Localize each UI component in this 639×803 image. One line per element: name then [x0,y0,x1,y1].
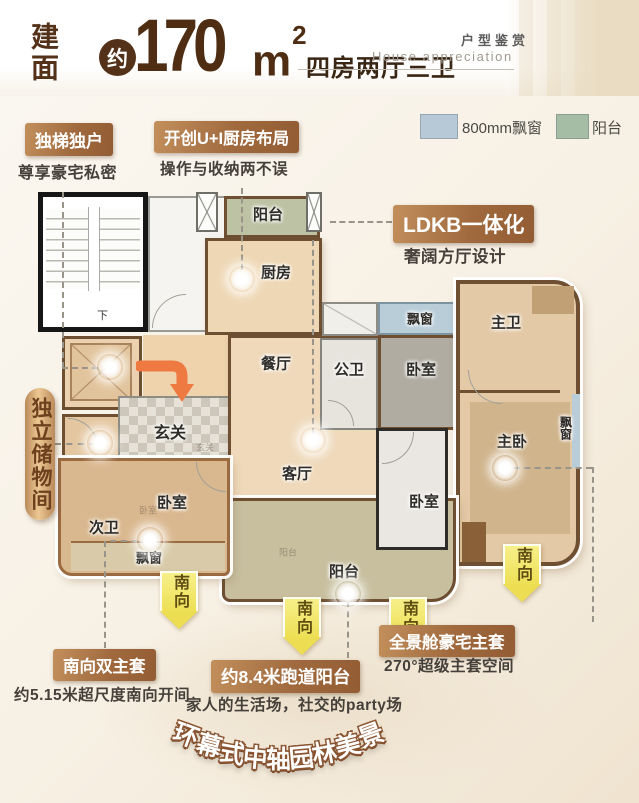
balcony-top-label: 阳台 [253,204,283,225]
connector-suite-v [104,541,106,648]
storage-ribbon-text: 独立储物间 [25,397,55,512]
unit-exponent: 2 [292,20,306,50]
south-arrow-2: 南向 [283,597,321,655]
glow-dot-balcony [335,581,361,607]
glow-dot-master [492,455,518,481]
arc-slogan: 环幕式中轴园林美景 [175,716,405,796]
bay-window-mid-label: 飘窗 [407,309,433,328]
glow-dot-elevator [97,354,123,380]
callout-south-suite-subtitle: 约5.15米超尺度南向开间 [14,683,190,705]
bay-window-right-label: 飘窗 [558,416,575,440]
kitchen-label: 厨房 [261,262,291,283]
unit-base: m [252,37,291,86]
callout-south-suite-title: 南向双主套 [53,649,156,681]
wardrobe [322,302,378,336]
balcony-bottom-label: 阳台 [329,561,359,582]
south-arrow-4-label: 南向 [505,547,539,583]
connector-master-h [514,467,592,469]
foyer-small-label: 玄关 [196,441,214,454]
master-bath-label: 主卫 [491,312,521,333]
header-underline [298,69,514,70]
bedroom-north-label: 卧室 [406,359,436,380]
legend-balcony-label: 阳台 [592,117,622,138]
glow-dot-storage [87,430,113,456]
area-value: 170 [134,0,223,92]
callout-private-elevator-subtitle: 尊享豪宅私密 [18,159,117,183]
callout-panorama-suite-subtitle: 270°超级主套空间 [384,654,514,676]
living-label: 客厅 [282,463,312,484]
stairs-down-label: 下 [97,307,108,323]
entry-route-arrow [136,354,198,404]
callout-panorama-suite-title: 全景舱豪宅主套 [379,625,515,657]
master-closet [532,286,574,314]
kitchen [205,238,322,335]
staircase: 下 [38,192,148,332]
bedroom-center-label: 卧室 [409,491,439,512]
header: 建面 约 170 m2 四房两厅三卫 户型鉴赏 House appreciati… [0,0,639,96]
callout-kitchen-title: 开创U+I厨房布局 [154,121,299,153]
connector-elevator-h [62,367,98,369]
second-bath-label: 次卫 [89,517,119,538]
connector-ldkb-h [330,221,392,223]
bedroom-left-label: 卧室 [157,492,187,513]
legend-balcony-swatch [556,114,589,139]
glow-dot-kitchen [229,266,255,292]
window-left-of-balcony [196,192,218,232]
poster: 建面 约 170 m2 四房两厅三卫 户型鉴赏 House appreciati… [0,0,639,803]
glow-dot-bedroom-left [137,527,163,553]
approx-seal: 约 [99,39,136,76]
connector-balcony-v [347,601,349,658]
storage-ribbon: 独立储物间 [25,388,55,520]
south-arrow-1: 南向 [160,571,198,629]
south-arrow-2-label: 南向 [285,600,319,636]
south-arrow-1-tip [160,611,198,629]
callout-runway-balcony-title: 约8.4米跑道阳台 [211,660,360,693]
master-corner-closet [462,522,486,562]
legend-bay-swatch [420,114,458,139]
south-arrow-4-tip [503,584,541,602]
area-unit: m2 [252,36,306,87]
header-title-en: House appreciation [372,49,513,64]
dining-label: 餐厅 [261,353,291,374]
public-bathroom-label: 公卫 [334,359,364,380]
legend-bay-label: 800mm飘窗 [462,117,542,138]
area-prefix: 建面 [28,22,58,84]
bedroom-north [378,335,462,430]
callout-private-elevator-title: 独梯独户 [25,123,113,156]
south-arrow-4: 南向 [503,544,541,602]
connector-ldkb-v [312,240,314,434]
callout-kitchen-subtitle: 操作与收纳两不误 [160,157,288,179]
glow-dot-living [300,427,326,453]
header-title-cn: 户型鉴赏 [461,30,529,49]
approx-text: 约 [107,43,128,73]
callout-runway-balcony-subtitle: 家人的生活场，社交的party场 [186,693,402,715]
callout-ldkb-title: LDKB一体化 [393,205,534,243]
south-arrow-1-label: 南向 [162,574,196,610]
connector-kitchen-v [241,188,243,270]
stair-rail [88,207,100,291]
foyer-label: 玄关 [154,419,186,443]
master-bedroom-label: 主卧 [497,431,527,452]
callout-ldkb-subtitle: 奢阔方厅设计 [404,243,506,267]
connector-elevator-v [62,192,64,368]
connector-master-v [592,467,594,622]
window-right-of-balcony [306,192,322,232]
south-arrow-2-tip [283,637,321,655]
balcony-bottom-watermark: 阳台 [279,546,297,559]
bedroom-left-watermark: 卧室 [139,504,157,517]
